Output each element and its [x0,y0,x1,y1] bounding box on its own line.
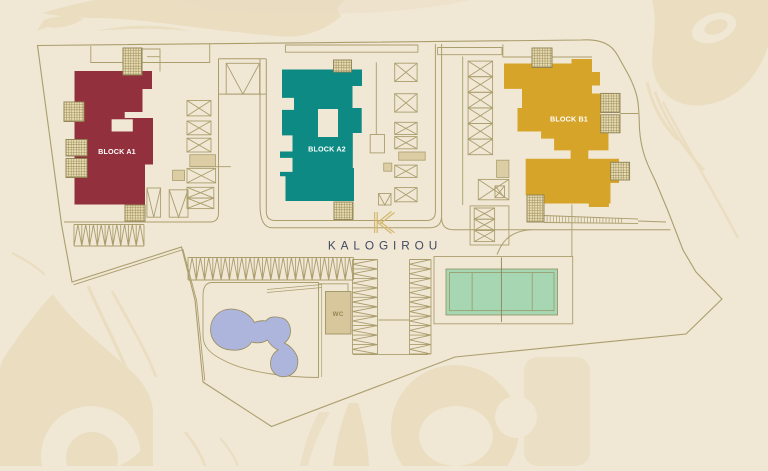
svg-text:WC: WC [333,311,344,318]
svg-text:BLOCK A1: BLOCK A1 [98,147,136,156]
svg-text:BLOCK B1: BLOCK B1 [550,115,588,124]
svg-text:KALOGIROU: KALOGIROU [328,239,442,253]
svg-text:BLOCK A2: BLOCK A2 [308,145,346,154]
